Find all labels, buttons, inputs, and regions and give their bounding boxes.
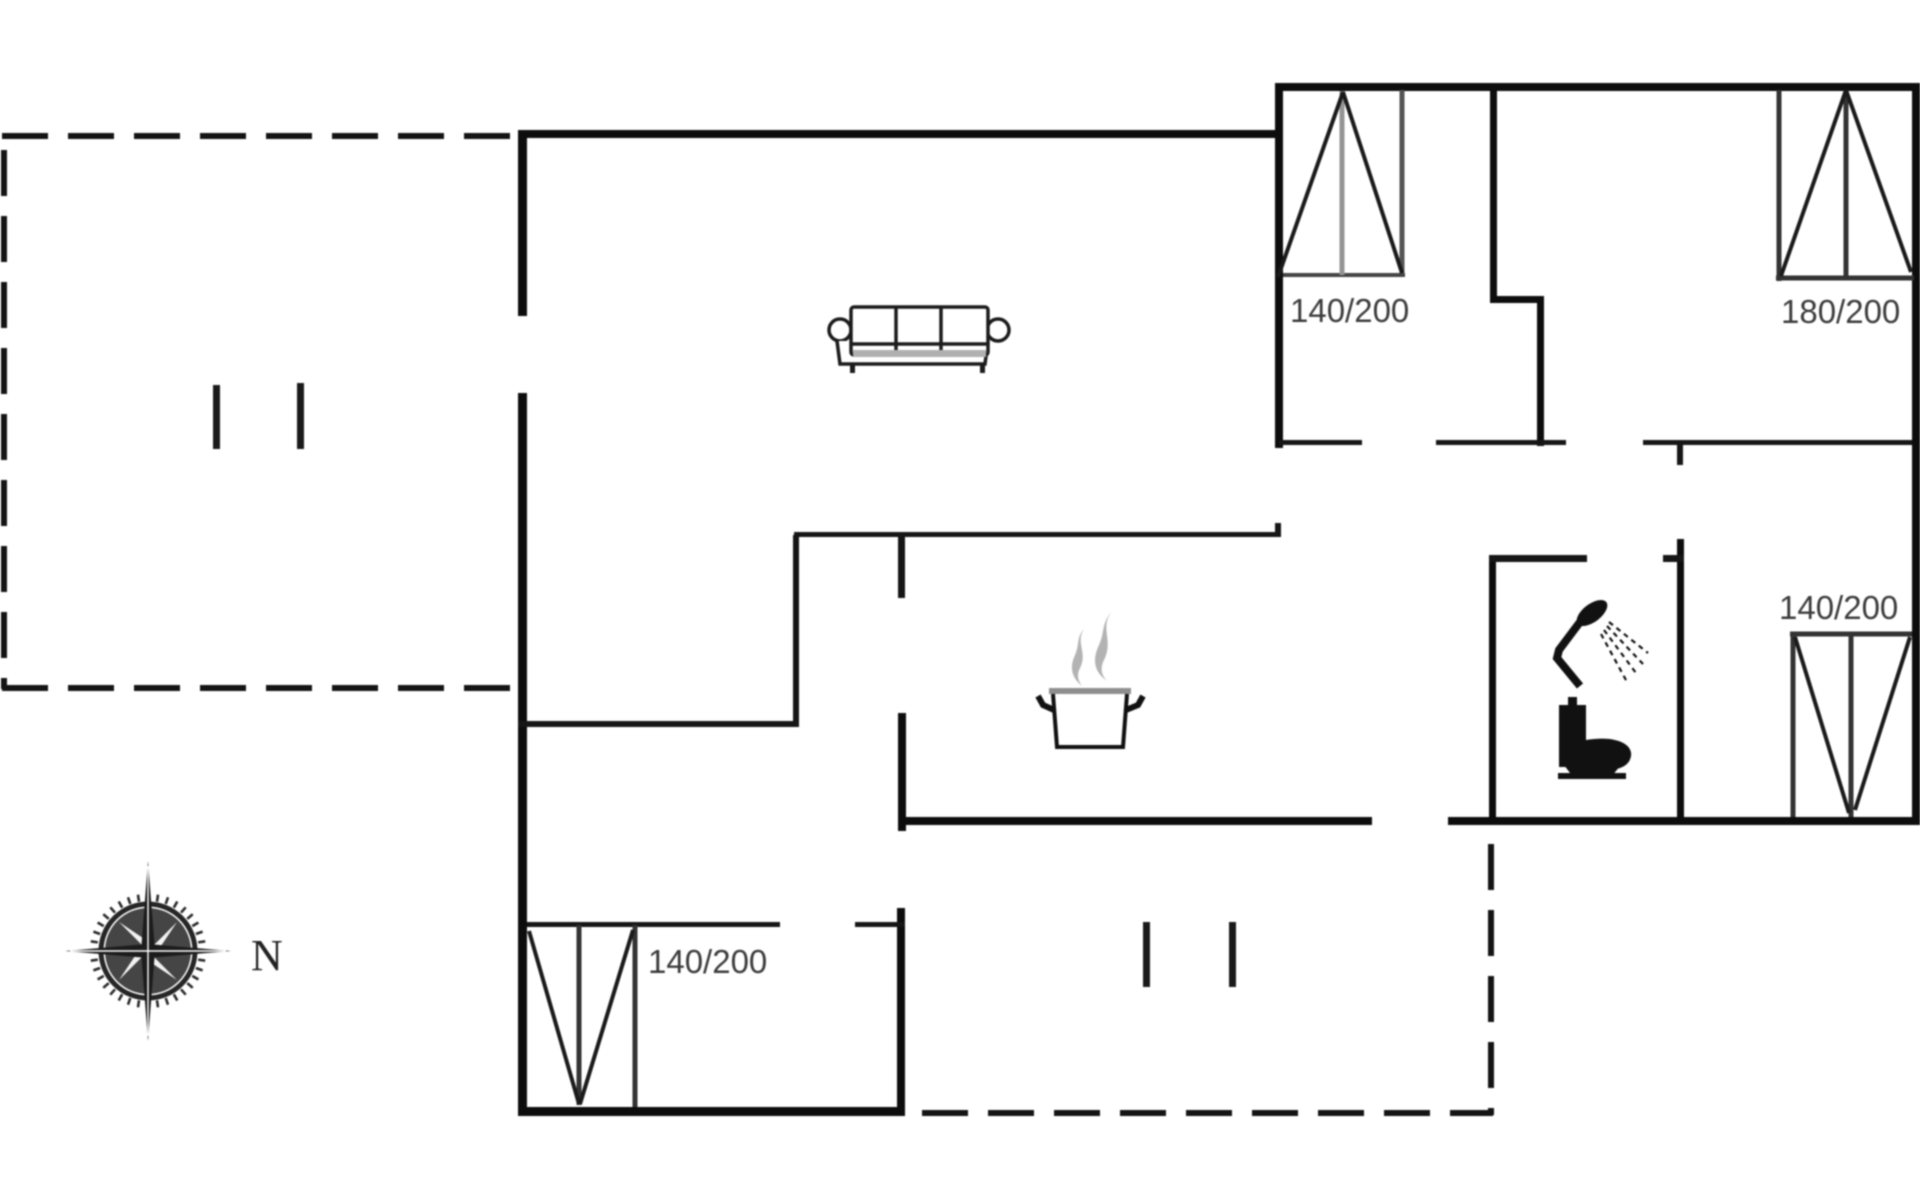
svg-text:140/200: 140/200: [1290, 292, 1409, 329]
svg-text:140/200: 140/200: [1779, 589, 1898, 626]
svg-text:N: N: [251, 931, 283, 980]
svg-text:180/200: 180/200: [1781, 293, 1900, 330]
svg-text:140/200: 140/200: [648, 943, 767, 980]
